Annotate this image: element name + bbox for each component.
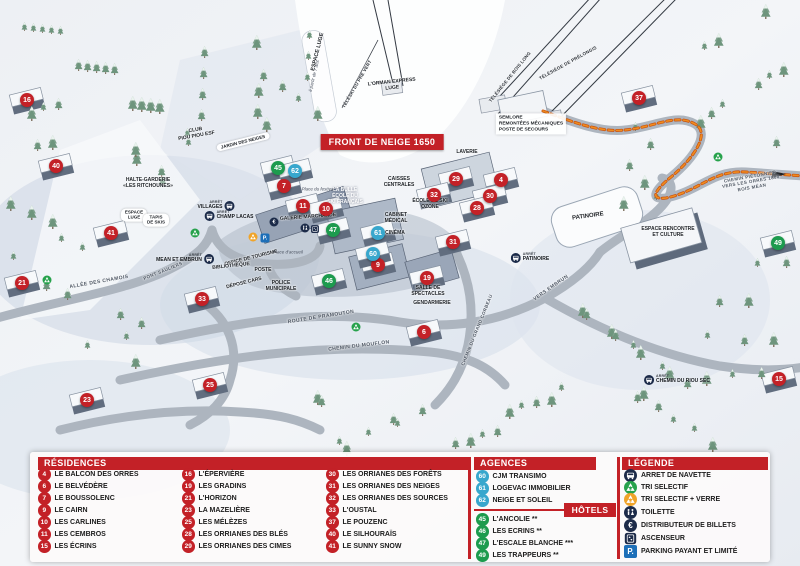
agency-item: 61LOGEVAC IMMOBILIER — [476, 482, 571, 495]
marker-number: 4 — [38, 468, 51, 481]
legend-item-label: DISTRIBUTEUR DE BILLETS — [641, 522, 736, 529]
map-tri-orange-icon — [249, 233, 258, 242]
marker-number: 23 — [182, 504, 195, 517]
map-label-salle-de: SALLE DESPECTACLES — [411, 285, 444, 297]
map-tri-green-icon — [191, 229, 200, 238]
map-marker-61: 61 — [371, 226, 385, 240]
ascenseur-icon — [624, 532, 637, 545]
map-label-semlore: SEMLOREREMONTÉES MÉCANIQUESPOSTE DE SECO… — [496, 113, 566, 134]
legend-item-label: ASCENSEUR — [641, 535, 685, 542]
map-marker-15: 15 — [772, 372, 786, 386]
residence-item-label: LES CEMBROS — [55, 531, 106, 538]
legend-item: €DISTRIBUTEUR DE BILLETS — [624, 519, 736, 532]
marker-number: 29 — [182, 540, 195, 553]
bus-icon — [205, 211, 215, 221]
bus-icon — [644, 375, 654, 385]
residence-item: 7LE BOUSSOLENC — [38, 492, 115, 505]
residence-item-label: LE SUNNY SNOW — [343, 543, 402, 550]
map-marker-16: 16 — [20, 93, 34, 107]
map-label-halte-garderie: HALTE-GARDERIE«LES RITCHOUNES» — [123, 177, 173, 189]
marker-number: 41 — [326, 540, 339, 553]
bus-icon — [204, 254, 214, 264]
residence-item: 6LE BELVÉDÈRE — [38, 480, 108, 493]
parking-icon: P. — [624, 545, 637, 558]
residence-item-label: LE SILHOURAÏS — [343, 531, 397, 538]
residence-item-label: LES ORRIANES DES SOURCES — [343, 495, 448, 502]
marker-number: 16 — [182, 468, 195, 481]
marker-number: 30 — [326, 468, 339, 481]
residence-item: 29LES ORRIANES DES CIMES — [182, 540, 291, 553]
marker-number: 28 — [182, 528, 195, 541]
marker-number: 31 — [326, 480, 339, 493]
agency-item-label: CJM TRANSIMO — [493, 473, 547, 480]
residence-item: 16L'ÉPERVIÈRE — [182, 468, 244, 481]
marker-number: 46 — [476, 525, 489, 538]
ascenseur-icon — [311, 225, 320, 234]
residence-item: 11LES CEMBROS — [38, 528, 106, 541]
residence-item-label: LES CARLINES — [55, 519, 106, 526]
marker-number: 32 — [326, 492, 339, 505]
residence-item: 41LE SUNNY SNOW — [326, 540, 402, 553]
marker-number: 45 — [476, 513, 489, 526]
legend-item: P.PARKING PAYANT ET LIMITÉ — [624, 545, 737, 558]
legend-item: TRI SELECTIF — [624, 481, 688, 494]
marker-number: 37 — [326, 516, 339, 529]
bus-stop-label: ARRÊTMEAN ET EMBRUN — [156, 254, 202, 263]
legend-item: ASCENSEUR — [624, 532, 685, 545]
panel-divider — [617, 457, 620, 559]
map-label-espace-rencontre: ESPACE RENCONTREET CULTURE — [641, 226, 694, 238]
map-marker-45: 45 — [271, 161, 285, 175]
front-de-neige-banner: FRONT DE NEIGE 1650 — [321, 134, 444, 150]
map-marker-25: 25 — [203, 378, 217, 392]
marker-number: 47 — [476, 537, 489, 550]
marker-number: 60 — [476, 470, 489, 483]
residence-item-label: LES ÉCRINS — [55, 543, 97, 550]
residence-item: 32LES ORRIANES DES SOURCES — [326, 492, 448, 505]
wc-icon — [624, 506, 637, 519]
residence-item-label: L'HORIZON — [199, 495, 237, 502]
map-ascenseur-icon — [311, 225, 320, 234]
residence-item-label: LE BELVÉDÈRE — [55, 483, 108, 490]
legend-item-label: TRI SELECTIF — [641, 484, 688, 491]
wc-icon — [301, 224, 310, 233]
bus-stop-champ-lacas: ARRÊTCHAMP LACAS — [205, 211, 254, 221]
map-marker-7: 7 — [277, 179, 291, 193]
map-euro-icon: € — [270, 218, 279, 227]
map-label-police: POLICEMUNICIPALE — [266, 280, 297, 292]
legend-item: TOILETTE — [624, 506, 675, 519]
map-tri-green-icon — [714, 153, 723, 162]
hotel-item: 47L'ESCALE BLANCHE *** — [476, 537, 573, 550]
residence-item: 30LES ORRIANES DES FORÊTS — [326, 468, 442, 481]
map-marker-10: 10 — [319, 202, 333, 216]
residence-item: 37LE POUZENC — [326, 516, 388, 529]
hotels-rule — [474, 509, 570, 511]
residence-item-label: LES ORRIANES DES FORÊTS — [343, 471, 442, 478]
map-marker-60: 60 — [366, 247, 380, 261]
legend-item-label: TRI SELECTIF + VERRE — [641, 496, 720, 503]
map-label-cin-ma: CINÉMA — [385, 230, 405, 236]
map-marker-62: 62 — [288, 164, 302, 178]
hotel-item-label: L'ANCOLIE ** — [493, 516, 538, 523]
euro-icon: € — [270, 218, 279, 227]
map-marker-19: 19 — [420, 271, 434, 285]
marker-number: 25 — [182, 516, 195, 529]
agency-item: 60CJM TRANSIMO — [476, 470, 547, 483]
map-marker-33: 33 — [195, 292, 209, 306]
legend-item: TRI SELECTIF + VERRE — [624, 493, 720, 506]
map-marker-6: 6 — [417, 325, 431, 339]
residence-item-label: LE POUZENC — [343, 519, 388, 526]
map-marker-46: 46 — [322, 274, 336, 288]
legend-panel: RÉSIDENCES AGENCES IMMOBILIÈRES LÉGENDE … — [30, 452, 770, 562]
tri-orange-icon — [624, 493, 637, 506]
agences-header: AGENCES IMMOBILIÈRES — [474, 457, 596, 470]
map-label-poste: POSTE — [255, 267, 272, 273]
map-marker-31: 31 — [446, 235, 460, 249]
residence-item: 4LE BALCON DES ORRES — [38, 468, 139, 481]
map-wc-icon — [301, 224, 310, 233]
marker-number: 21 — [182, 492, 195, 505]
residence-item-label: LES GRADINS — [199, 483, 247, 490]
legend-item-label: PARKING PAYANT ET LIMITÉ — [641, 548, 737, 555]
tri-green-icon — [191, 229, 200, 238]
residence-item: 40LE SILHOURAÏS — [326, 528, 397, 541]
map-label-gendarmerie: GENDARMERIE — [413, 300, 451, 306]
residence-item: 9LE CAIRN — [38, 504, 88, 517]
marker-number: 11 — [38, 528, 51, 541]
map-marker-49: 49 — [771, 236, 785, 250]
marker-number: 15 — [38, 540, 51, 553]
panel-divider — [468, 457, 471, 559]
hotels-header: HÔTELS — [564, 503, 616, 517]
resort-map: FRONT DE NEIGE 1650 CLUBPIOU PIOU ESFJAR… — [0, 0, 800, 566]
legend-item-label: TOILETTE — [641, 509, 675, 516]
map-marker-21: 21 — [15, 276, 29, 290]
marker-number: 40 — [326, 528, 339, 541]
marker-number: 19 — [182, 480, 195, 493]
bus-icon — [511, 253, 521, 263]
marker-number: 6 — [38, 480, 51, 493]
residence-item-label: LES MÉLÈZES — [199, 519, 248, 526]
hotel-item-label: LES TRAPPEURS ** — [493, 552, 559, 559]
marker-number: 7 — [38, 492, 51, 505]
residence-item-label: LE BALCON DES ORRES — [55, 471, 139, 478]
residence-item: 33L'OUSTAL — [326, 504, 377, 517]
marker-number: 33 — [326, 504, 339, 517]
tri-green-icon — [43, 276, 52, 285]
hotel-item: 46LES ECRINS ** — [476, 525, 542, 538]
marker-number: 62 — [476, 494, 489, 507]
residence-item: 25LES MÉLÈZES — [182, 516, 247, 529]
euro-icon: € — [624, 519, 637, 532]
map-marker-11: 11 — [296, 199, 310, 213]
bus-stop-patinoire: ARRÊTPATINOIRE — [511, 253, 549, 263]
residence-item-label: L'OUSTAL — [343, 507, 377, 514]
agency-item-label: LOGEVAC IMMOBILIER — [493, 485, 571, 492]
residence-item: 10LES CARLINES — [38, 516, 106, 529]
legend-item-label: ARRET DE NAVETTE — [641, 472, 711, 479]
residence-item: 19LES GRADINS — [182, 480, 246, 493]
map-label-place-d-accueil: Place d'accueil — [273, 249, 303, 254]
map-parking-icon: P. — [261, 234, 270, 243]
hotel-item-label: LES ECRINS ** — [493, 528, 542, 535]
hotel-item: 49LES TRAPPEURS ** — [476, 549, 559, 562]
residence-item-label: LES ORRIANES DES CIMES — [199, 543, 292, 550]
map-marker-28: 28 — [470, 201, 484, 215]
map-label-laverie: LAVERIE — [456, 149, 477, 155]
map-marker-37: 37 — [632, 91, 646, 105]
map-label-cabinet: CABINETMÉDICAL — [385, 212, 408, 224]
residence-item: 23LA MAZELIÈRE — [182, 504, 250, 517]
hotel-item: 45L'ANCOLIE ** — [476, 513, 537, 526]
residence-item-label: LA MAZELIÈRE — [199, 507, 250, 514]
map-marker-41: 41 — [104, 226, 118, 240]
tri-orange-icon — [249, 233, 258, 242]
tri-green-icon — [714, 153, 723, 162]
tri-green-icon — [352, 323, 361, 332]
bus-stop-mean-et-embrun: ARRÊTMEAN ET EMBRUN — [156, 254, 214, 264]
map-tri-green-icon — [43, 276, 52, 285]
map-marker-40: 40 — [49, 159, 63, 173]
map-marker-29: 29 — [449, 172, 463, 186]
residence-item-label: LE BOUSSOLENC — [55, 495, 115, 502]
residence-item-label: LES ORRIANES DES NEIGES — [343, 483, 440, 490]
parking-icon: P. — [261, 234, 270, 243]
residence-item-label: LES ORRIANES DES BLÉS — [199, 531, 288, 538]
marker-number: 9 — [38, 504, 51, 517]
bus-stop-label: ARRÊTCHAMP LACAS — [217, 211, 254, 220]
marker-number: 61 — [476, 482, 489, 495]
bus-stop-chemin-du-riou-sec: ARRÊTCHEMIN DU RIOU SEC — [644, 375, 710, 385]
agency-item-label: NEIGE ET SOLEIL — [493, 497, 553, 504]
marker-number: 10 — [38, 516, 51, 529]
residence-item: 15LES ÉCRINS — [38, 540, 97, 553]
marker-number: 49 — [476, 549, 489, 562]
map-tri-green-icon — [352, 323, 361, 332]
map-label-caisses: CAISSESCENTRALES — [384, 176, 415, 188]
hotel-item-label: L'ESCALE BLANCHE *** — [493, 540, 574, 547]
map-marker-47: 47 — [326, 223, 340, 237]
bus-stop-label: ARRÊTCHEMIN DU RIOU SEC — [656, 375, 710, 384]
residence-item: 21L'HORIZON — [182, 492, 237, 505]
residence-item-label: LE CAIRN — [55, 507, 88, 514]
agency-item: 62NEIGE ET SOLEIL — [476, 494, 552, 507]
residence-item: 28LES ORRIANES DES BLÉS — [182, 528, 288, 541]
map-marker-32: 32 — [427, 188, 441, 202]
map-marker-30: 30 — [483, 189, 497, 203]
map-marker-4: 4 — [494, 173, 508, 187]
residence-item-label: L'ÉPERVIÈRE — [199, 471, 245, 478]
bus-stop-label: ARRÊTPATINOIRE — [523, 253, 549, 262]
map-marker-23: 23 — [80, 393, 94, 407]
residence-item: 31LES ORRIANES DES NEIGES — [326, 480, 440, 493]
map-label-tapis: TAPISDE SKIS — [143, 214, 169, 227]
legend-item: ARRET DE NAVETTE — [624, 469, 711, 482]
map-label-place-du-festival: Place du festival — [302, 186, 335, 191]
